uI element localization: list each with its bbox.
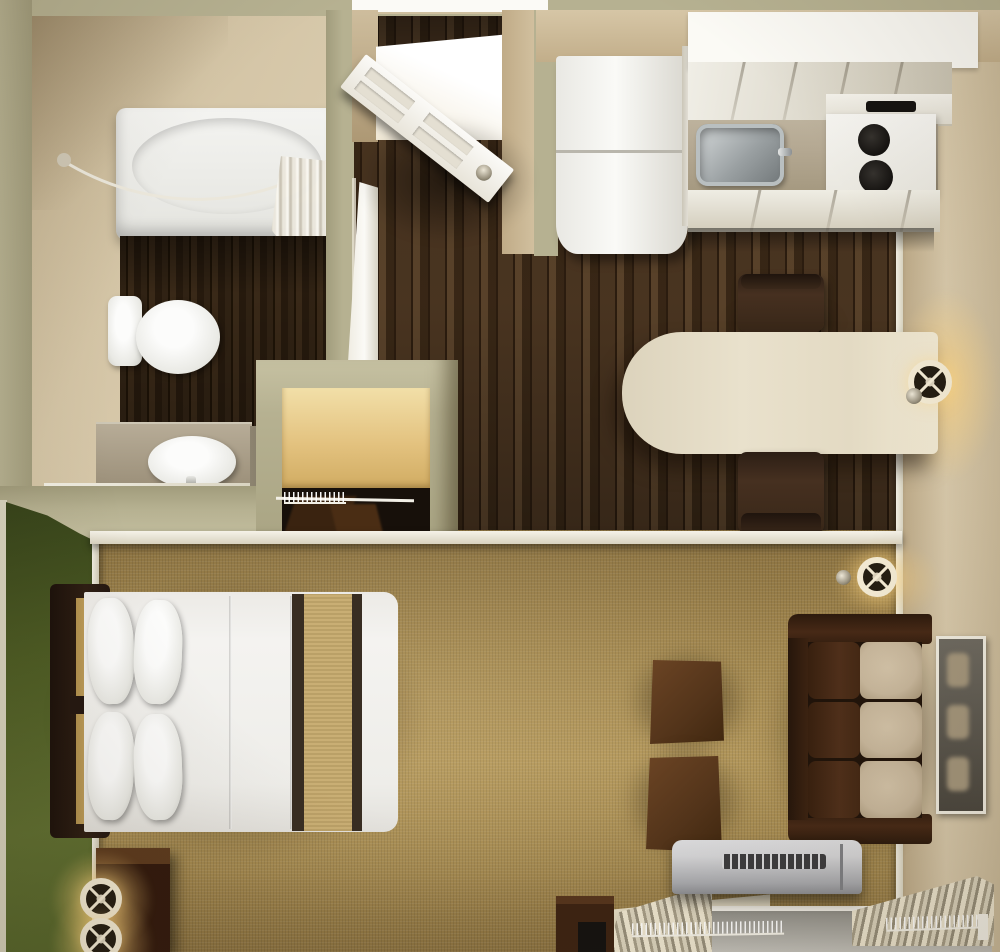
bed-pillow <box>132 713 184 821</box>
bed-runner-stripe-dark <box>292 594 304 831</box>
kitchen-sink <box>696 124 784 186</box>
stove-burner <box>859 160 893 194</box>
sofa <box>788 614 932 844</box>
sink-faucet-kitchen <box>778 148 792 156</box>
mirror-reflection <box>947 757 969 791</box>
floor-threshold <box>90 531 902 544</box>
refrigerator-top-seam <box>556 150 688 153</box>
ottoman <box>650 660 724 744</box>
seat-cushion <box>860 761 922 818</box>
lamp-finial <box>97 895 106 904</box>
wall-knob <box>906 388 922 404</box>
closet-desk-shelf <box>282 388 430 490</box>
curtain-end-bracket <box>978 914 988 940</box>
table-lamp-top-view <box>80 878 122 920</box>
wall-mirror <box>936 636 986 814</box>
sofa-back-cushions <box>808 642 860 818</box>
back-cushion <box>808 702 860 759</box>
cabinet-floor-shadow <box>688 228 934 252</box>
living-wall-sconce <box>857 557 897 597</box>
closet-hangers <box>284 492 346 504</box>
cabinet-divider <box>826 190 838 232</box>
sconce-hub <box>926 378 935 387</box>
bed-pillow <box>132 599 184 705</box>
seat-cushion <box>860 642 922 699</box>
cabinet-divider <box>750 190 762 232</box>
media-cabinet-slot <box>578 922 606 952</box>
cabinet-divider <box>900 190 912 232</box>
lamp-finial <box>97 935 106 944</box>
door-knob <box>473 162 495 184</box>
sconce-hub <box>873 573 882 582</box>
apartment-floor-plan-render <box>0 0 1000 952</box>
ac-unit <box>672 840 862 894</box>
dining-table <box>622 332 938 454</box>
bed-runner-stripe-tan <box>304 594 352 831</box>
table-lamp-top-view <box>80 918 122 952</box>
curtain-hooks-left <box>632 921 784 938</box>
lower-cabinets <box>688 190 940 232</box>
media-cabinet <box>556 896 614 952</box>
duvet-fold <box>229 596 232 829</box>
sofa-seat-cushions <box>860 642 922 818</box>
back-cushion <box>808 642 860 699</box>
ottoman <box>646 756 722 852</box>
wall-knob <box>836 570 851 585</box>
toilet-bowl <box>136 300 220 374</box>
cabinet-divider <box>729 62 746 126</box>
wall-left <box>0 0 32 505</box>
seat-cushion <box>860 702 922 759</box>
ac-vent-grille <box>722 854 826 869</box>
dining-chair-bottom <box>738 452 824 534</box>
mirror-reflection <box>947 653 969 687</box>
stove-burner <box>858 124 890 156</box>
bed-runner-stripe-dark <box>352 594 362 831</box>
upper-cabinets-top <box>688 12 978 68</box>
wall-outer-edge-strip <box>0 500 7 952</box>
cabinet-divider <box>781 62 798 126</box>
sofa-back-rail <box>788 638 810 820</box>
refrigerator <box>556 56 688 254</box>
stove-control-slot <box>866 101 916 112</box>
back-cushion <box>808 761 860 818</box>
dining-chair-top <box>738 274 824 332</box>
bed-pillow <box>86 597 136 705</box>
mirror-reflection <box>947 705 969 739</box>
ac-side-seam <box>840 844 843 890</box>
